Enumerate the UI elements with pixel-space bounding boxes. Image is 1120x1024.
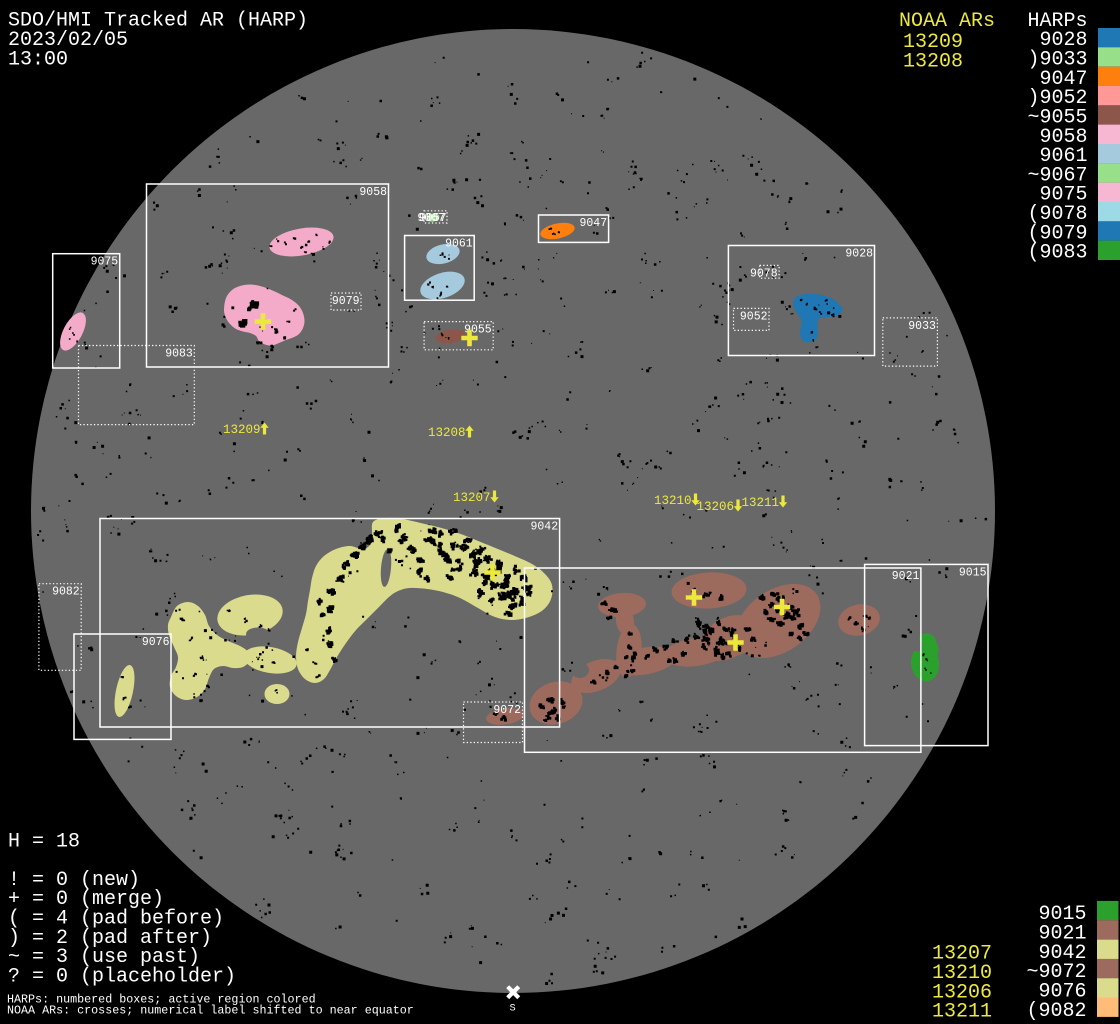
svg-text:9083: 9083 (165, 348, 193, 361)
svg-text:9047: 9047 (579, 217, 607, 230)
svg-text:(9083: (9083 (1027, 242, 1087, 265)
svg-text:9052: 9052 (740, 310, 768, 323)
svg-text:H = 18: H = 18 (8, 830, 80, 853)
svg-text:13:00: 13:00 (8, 48, 68, 71)
svg-text:9082: 9082 (52, 586, 80, 599)
svg-text:13207: 13207 (453, 491, 491, 505)
svg-text:13211: 13211 (932, 1001, 992, 1024)
svg-text:13209: 13209 (223, 423, 261, 437)
svg-text:NOAA ARs: NOAA ARs (899, 10, 995, 33)
svg-text:9079: 9079 (332, 295, 360, 308)
svg-text:S: S (510, 1003, 516, 1015)
svg-text:9058: 9058 (359, 186, 387, 199)
svg-text:(9082: (9082 (1026, 1000, 1086, 1023)
svg-text:13206: 13206 (697, 500, 735, 514)
svg-text:13208: 13208 (903, 50, 963, 73)
svg-text:9028: 9028 (845, 248, 873, 261)
svg-text:9061: 9061 (445, 238, 473, 251)
svg-text:13211: 13211 (742, 496, 780, 510)
svg-text:13208: 13208 (428, 426, 466, 440)
svg-text:9033: 9033 (908, 320, 936, 333)
svg-text:9042: 9042 (530, 521, 558, 534)
svg-text:? = 0 (placeholder): ? = 0 (placeholder) (8, 965, 236, 988)
svg-text:9015: 9015 (959, 566, 987, 579)
svg-text:9075: 9075 (91, 256, 119, 269)
svg-text:9067: 9067 (417, 212, 445, 225)
svg-text:9021: 9021 (892, 570, 920, 583)
svg-text:9076: 9076 (142, 636, 170, 649)
svg-text:13210: 13210 (654, 494, 692, 508)
svg-text:NOAA ARs: crosses; numerical l: NOAA ARs: crosses; numerical label shift… (7, 1004, 414, 1018)
svg-text:9078: 9078 (750, 267, 778, 280)
svg-text:9072: 9072 (493, 704, 521, 717)
